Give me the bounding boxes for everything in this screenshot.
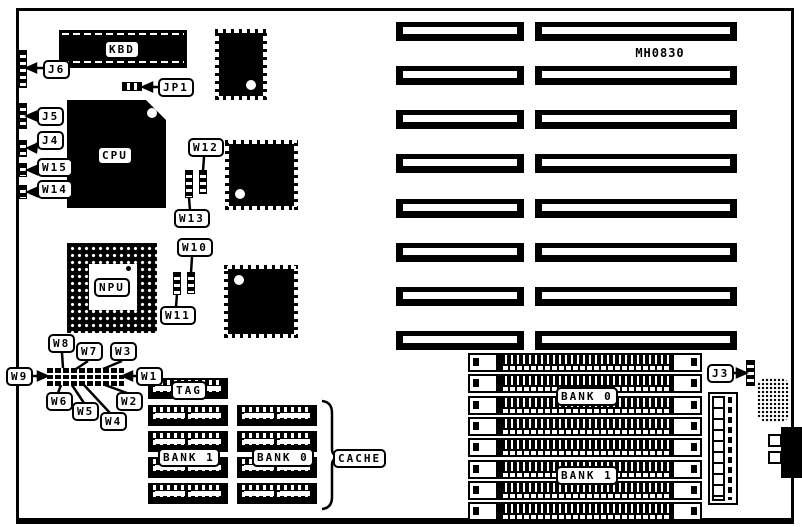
pin1-dot [246, 80, 256, 90]
w4-label: W4 [100, 412, 127, 431]
simm-bank1-label: BANK 1 [556, 466, 618, 485]
j6-label: J6 [43, 60, 70, 79]
simm-latch-left [468, 438, 498, 457]
kbd-label: KBD [104, 40, 140, 59]
isa-slot-short [396, 22, 524, 41]
w11-label: W11 [160, 306, 196, 325]
isa-slot-short [396, 199, 524, 218]
power-pins [712, 396, 725, 501]
cache-label: CACHE [333, 449, 386, 468]
isa-slot-long [535, 287, 737, 306]
isa-slot-long [535, 154, 737, 173]
w1-label: W1 [136, 367, 163, 386]
connector-plug-2 [768, 451, 782, 464]
jp1-header [122, 82, 142, 91]
simm-pin-row [498, 353, 672, 372]
w12-label: W12 [188, 138, 224, 157]
w-jumper-block [47, 368, 124, 386]
simm-latch-right [672, 417, 702, 436]
simm-latch-left [468, 481, 498, 500]
w7-label: W7 [76, 342, 103, 361]
connector-plug-1 [768, 434, 782, 447]
w14-jumper [19, 185, 27, 199]
w2-label: W2 [116, 392, 143, 411]
j3-label: J3 [707, 364, 734, 383]
w13-label: W13 [174, 209, 210, 228]
isa-slot-short [396, 243, 524, 262]
simm-latch-right [672, 396, 702, 415]
qfp-chip-2 [229, 144, 294, 206]
simm-socket [468, 438, 702, 457]
isa-slot-short [396, 154, 524, 173]
npu-label: NPU [94, 278, 130, 297]
jp1-label: JP1 [158, 78, 194, 97]
simm-latch-right [672, 502, 702, 521]
simm-pin-row [498, 502, 672, 521]
tag-label: TAG [171, 381, 207, 400]
pin1-dot [147, 108, 157, 118]
isa-slot-short [396, 287, 524, 306]
simm-latch-left [468, 460, 498, 479]
power-connector [708, 392, 738, 505]
isa-slot-long [535, 22, 737, 41]
j3-header [746, 360, 755, 386]
w5-label: W5 [72, 402, 99, 421]
w15-label: W15 [37, 158, 73, 177]
w15-jumper [19, 163, 27, 177]
isa-slot-short [396, 110, 524, 129]
w12-jumper [199, 170, 207, 194]
simm-latch-left [468, 502, 498, 521]
simm-latch-left [468, 417, 498, 436]
cpu-label: CPU [97, 146, 133, 165]
pin1-dot [234, 275, 244, 285]
board-model-text: MH0830 [610, 46, 710, 60]
j4-header [19, 140, 27, 157]
simm-latch-left [468, 396, 498, 415]
qfp-chip-3 [228, 269, 294, 334]
cache-chip [237, 483, 317, 504]
isa-slot-long [535, 331, 737, 350]
simm-latch-right [672, 481, 702, 500]
cache-bank1-label: BANK 1 [158, 448, 220, 467]
j4-label: J4 [37, 131, 64, 150]
w11-jumper [173, 272, 181, 295]
simm-latch-right [672, 353, 702, 372]
qfp-chip-1 [219, 33, 263, 96]
j5-label: J5 [37, 107, 64, 126]
w9-label: W9 [6, 367, 33, 386]
w10-jumper [187, 272, 195, 294]
w13-jumper [185, 170, 193, 198]
simm-socket [468, 502, 702, 521]
pin1-dot [235, 189, 245, 199]
isa-slot-long [535, 243, 737, 262]
keyboard-connector [781, 427, 802, 478]
simm-pin-row [498, 417, 672, 436]
isa-slot-long [535, 66, 737, 85]
w8-label: W8 [48, 334, 75, 353]
simm-bank0-label: BANK 0 [556, 387, 618, 406]
simm-latch-left [468, 353, 498, 372]
simm-latch-right [672, 460, 702, 479]
cache-chip [148, 483, 228, 504]
simm-latch-right [672, 438, 702, 457]
simm-socket [468, 353, 702, 372]
simm-latch-left [468, 374, 498, 393]
j5-header [19, 103, 27, 129]
simm-latch-right [672, 374, 702, 393]
cache-chip [148, 405, 228, 426]
cache-bank0-label: BANK 0 [252, 448, 314, 467]
w3-label: W3 [110, 342, 137, 361]
power-pin-dashes [728, 397, 732, 500]
isa-slot-short [396, 331, 524, 350]
simm-socket [468, 417, 702, 436]
isa-slot-short [396, 66, 524, 85]
w10-label: W10 [177, 238, 213, 257]
j6-header [19, 50, 27, 88]
isa-slot-long [535, 110, 737, 129]
w14-label: W14 [37, 180, 73, 199]
cache-chip [237, 405, 317, 426]
stippled-component [757, 378, 790, 422]
npu-pin1-dot [126, 266, 131, 271]
simm-pin-row [498, 438, 672, 457]
w6-label: W6 [46, 392, 73, 411]
isa-slot-long [535, 199, 737, 218]
motherboard-diagram: KBD J6 JP1 J5 J4 W15 W14 CPU W12 W13 W10… [0, 0, 802, 527]
